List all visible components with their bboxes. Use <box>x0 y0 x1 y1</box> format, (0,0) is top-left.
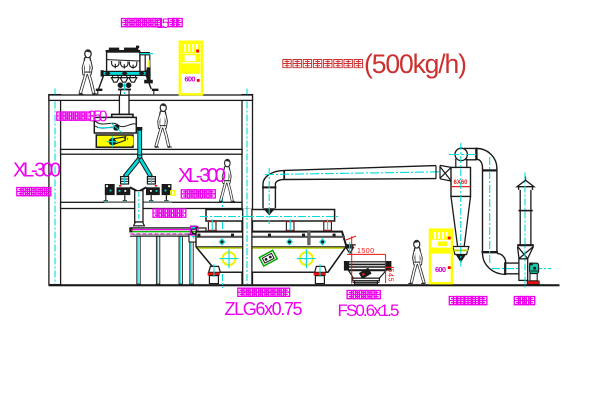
svg-text:XL-300: XL-300 <box>178 165 226 187</box>
svg-text:XL-300: XL-300 <box>13 160 61 182</box>
svg-text:600: 600 <box>185 75 196 84</box>
svg-text:(500kg/h): (500kg/h) <box>364 49 467 79</box>
svg-text:545: 545 <box>387 269 394 282</box>
svg-text:350: 350 <box>88 109 108 126</box>
svg-text:FS0.6x1.5: FS0.6x1.5 <box>338 301 400 320</box>
svg-text:600: 600 <box>435 265 446 274</box>
svg-text:1500: 1500 <box>357 248 374 255</box>
svg-text:1.5: 1.5 <box>157 15 170 31</box>
svg-text:ZLG6x0.75: ZLG6x0.75 <box>225 299 303 319</box>
